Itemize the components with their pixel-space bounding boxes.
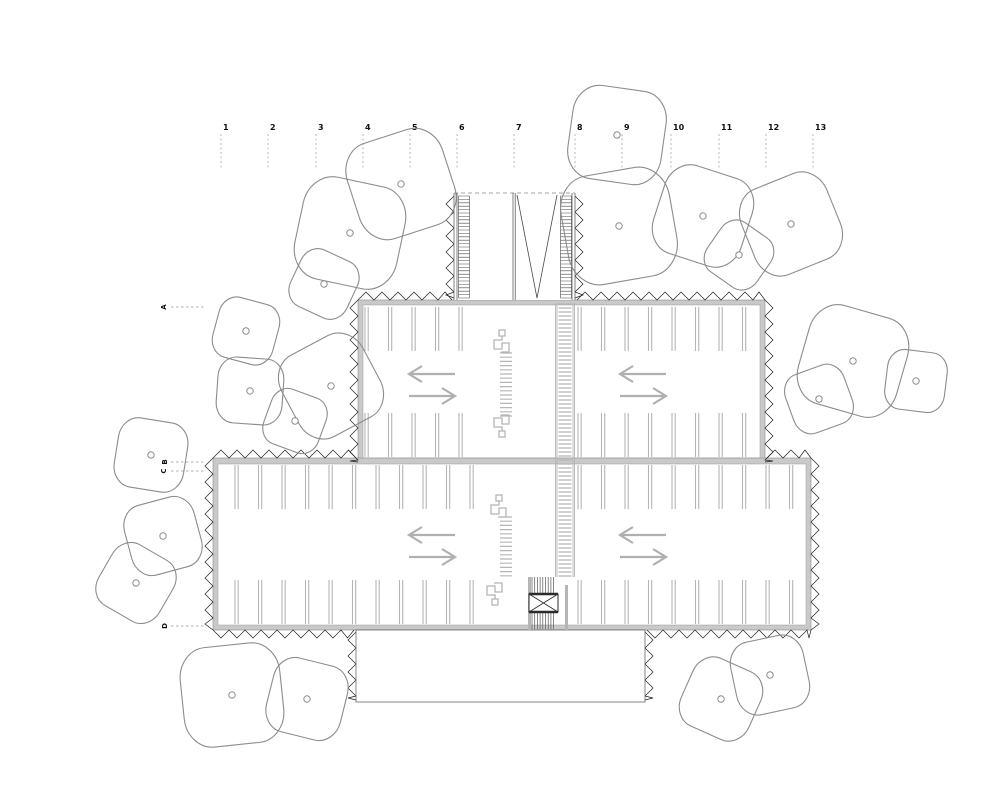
row-marker-label: C [160,468,168,473]
row-marker-label: D [161,623,169,629]
sawtooth-edge [647,630,811,638]
tree [779,359,858,438]
tree-trunk-dot [132,579,141,588]
grid-label: 2 [270,123,276,132]
tree [697,213,781,297]
tree-trunk-dot [397,180,405,188]
tree [88,535,184,631]
floor-plan-page: 12345678910111213ABCD [0,0,1000,800]
grid-label: 7 [516,123,522,132]
tree-trunk-dot [291,417,299,425]
sawtooth-edge [350,300,358,462]
tree [261,653,353,745]
grid-label: 13 [815,123,826,132]
row-marker-label: B [161,459,169,464]
tree-trunk-dot [735,251,744,260]
row-marker-label: A [160,304,168,310]
tree-trunk-dot [303,695,311,703]
sawtooth-edge [765,300,773,462]
grid-label: 4 [365,123,371,132]
sawtooth-edge [213,630,354,638]
grid-label: 12 [768,123,779,132]
tree-trunk-dot [717,695,725,703]
tree-trunk-dot [147,451,154,458]
floor-plan-canvas: 12345678910111213ABCD [0,0,1000,800]
core-wall [565,585,568,630]
tree [672,650,770,748]
entry-ramp-structure [454,193,575,300]
tree-trunk-dot [346,229,354,237]
grid-label: 10 [673,123,685,132]
tree-trunk-dot [613,131,620,138]
tree-trunk-dot [912,377,919,384]
grid-label: 5 [412,123,418,132]
tree-trunk-dot [815,395,823,403]
grid-label: 8 [577,123,583,132]
tree [111,415,191,495]
tree-trunk-dot [242,327,250,335]
tree-trunk-dot [766,671,774,679]
ground-apron [356,630,645,702]
tree [215,356,285,426]
tree-trunk-dot [247,388,254,395]
ramp-floor [454,193,575,300]
sawtooth-edge [577,292,765,300]
tree [258,384,332,458]
tree [177,640,287,750]
tree-trunk-dot [327,382,336,391]
tree-trunk-dot [699,212,707,220]
tree-trunk-dot [615,222,622,229]
tree [119,492,207,580]
row-markers: ABCD [160,304,205,629]
tree-trunk-dot [228,691,235,698]
grid-label: 3 [318,123,324,132]
grid-label: 1 [223,123,229,132]
sawtooth-edge [645,632,653,700]
grid-label: 6 [459,123,465,132]
sawtooth-edge [767,450,811,458]
tree [338,121,464,247]
tree-trunk-dot [849,357,857,365]
sawtooth-edge [575,196,583,298]
crosswalk-stripes [500,517,512,576]
tree [645,158,761,274]
lower-wing-floor [218,464,806,625]
grid-label: 9 [624,123,630,132]
tree-trunk-dot [787,220,795,228]
sawtooth-edge [811,458,819,630]
sawtooth-edge [348,632,356,700]
tree [883,348,950,415]
grid-label: 11 [721,123,733,132]
sawtooth-edge [205,458,213,630]
sawtooth-edge [358,292,452,300]
tree-trunk-dot [159,532,167,540]
grid-columns: 12345678910111213 [221,123,826,170]
tree [726,631,814,719]
sawtooth-edge [213,450,356,458]
